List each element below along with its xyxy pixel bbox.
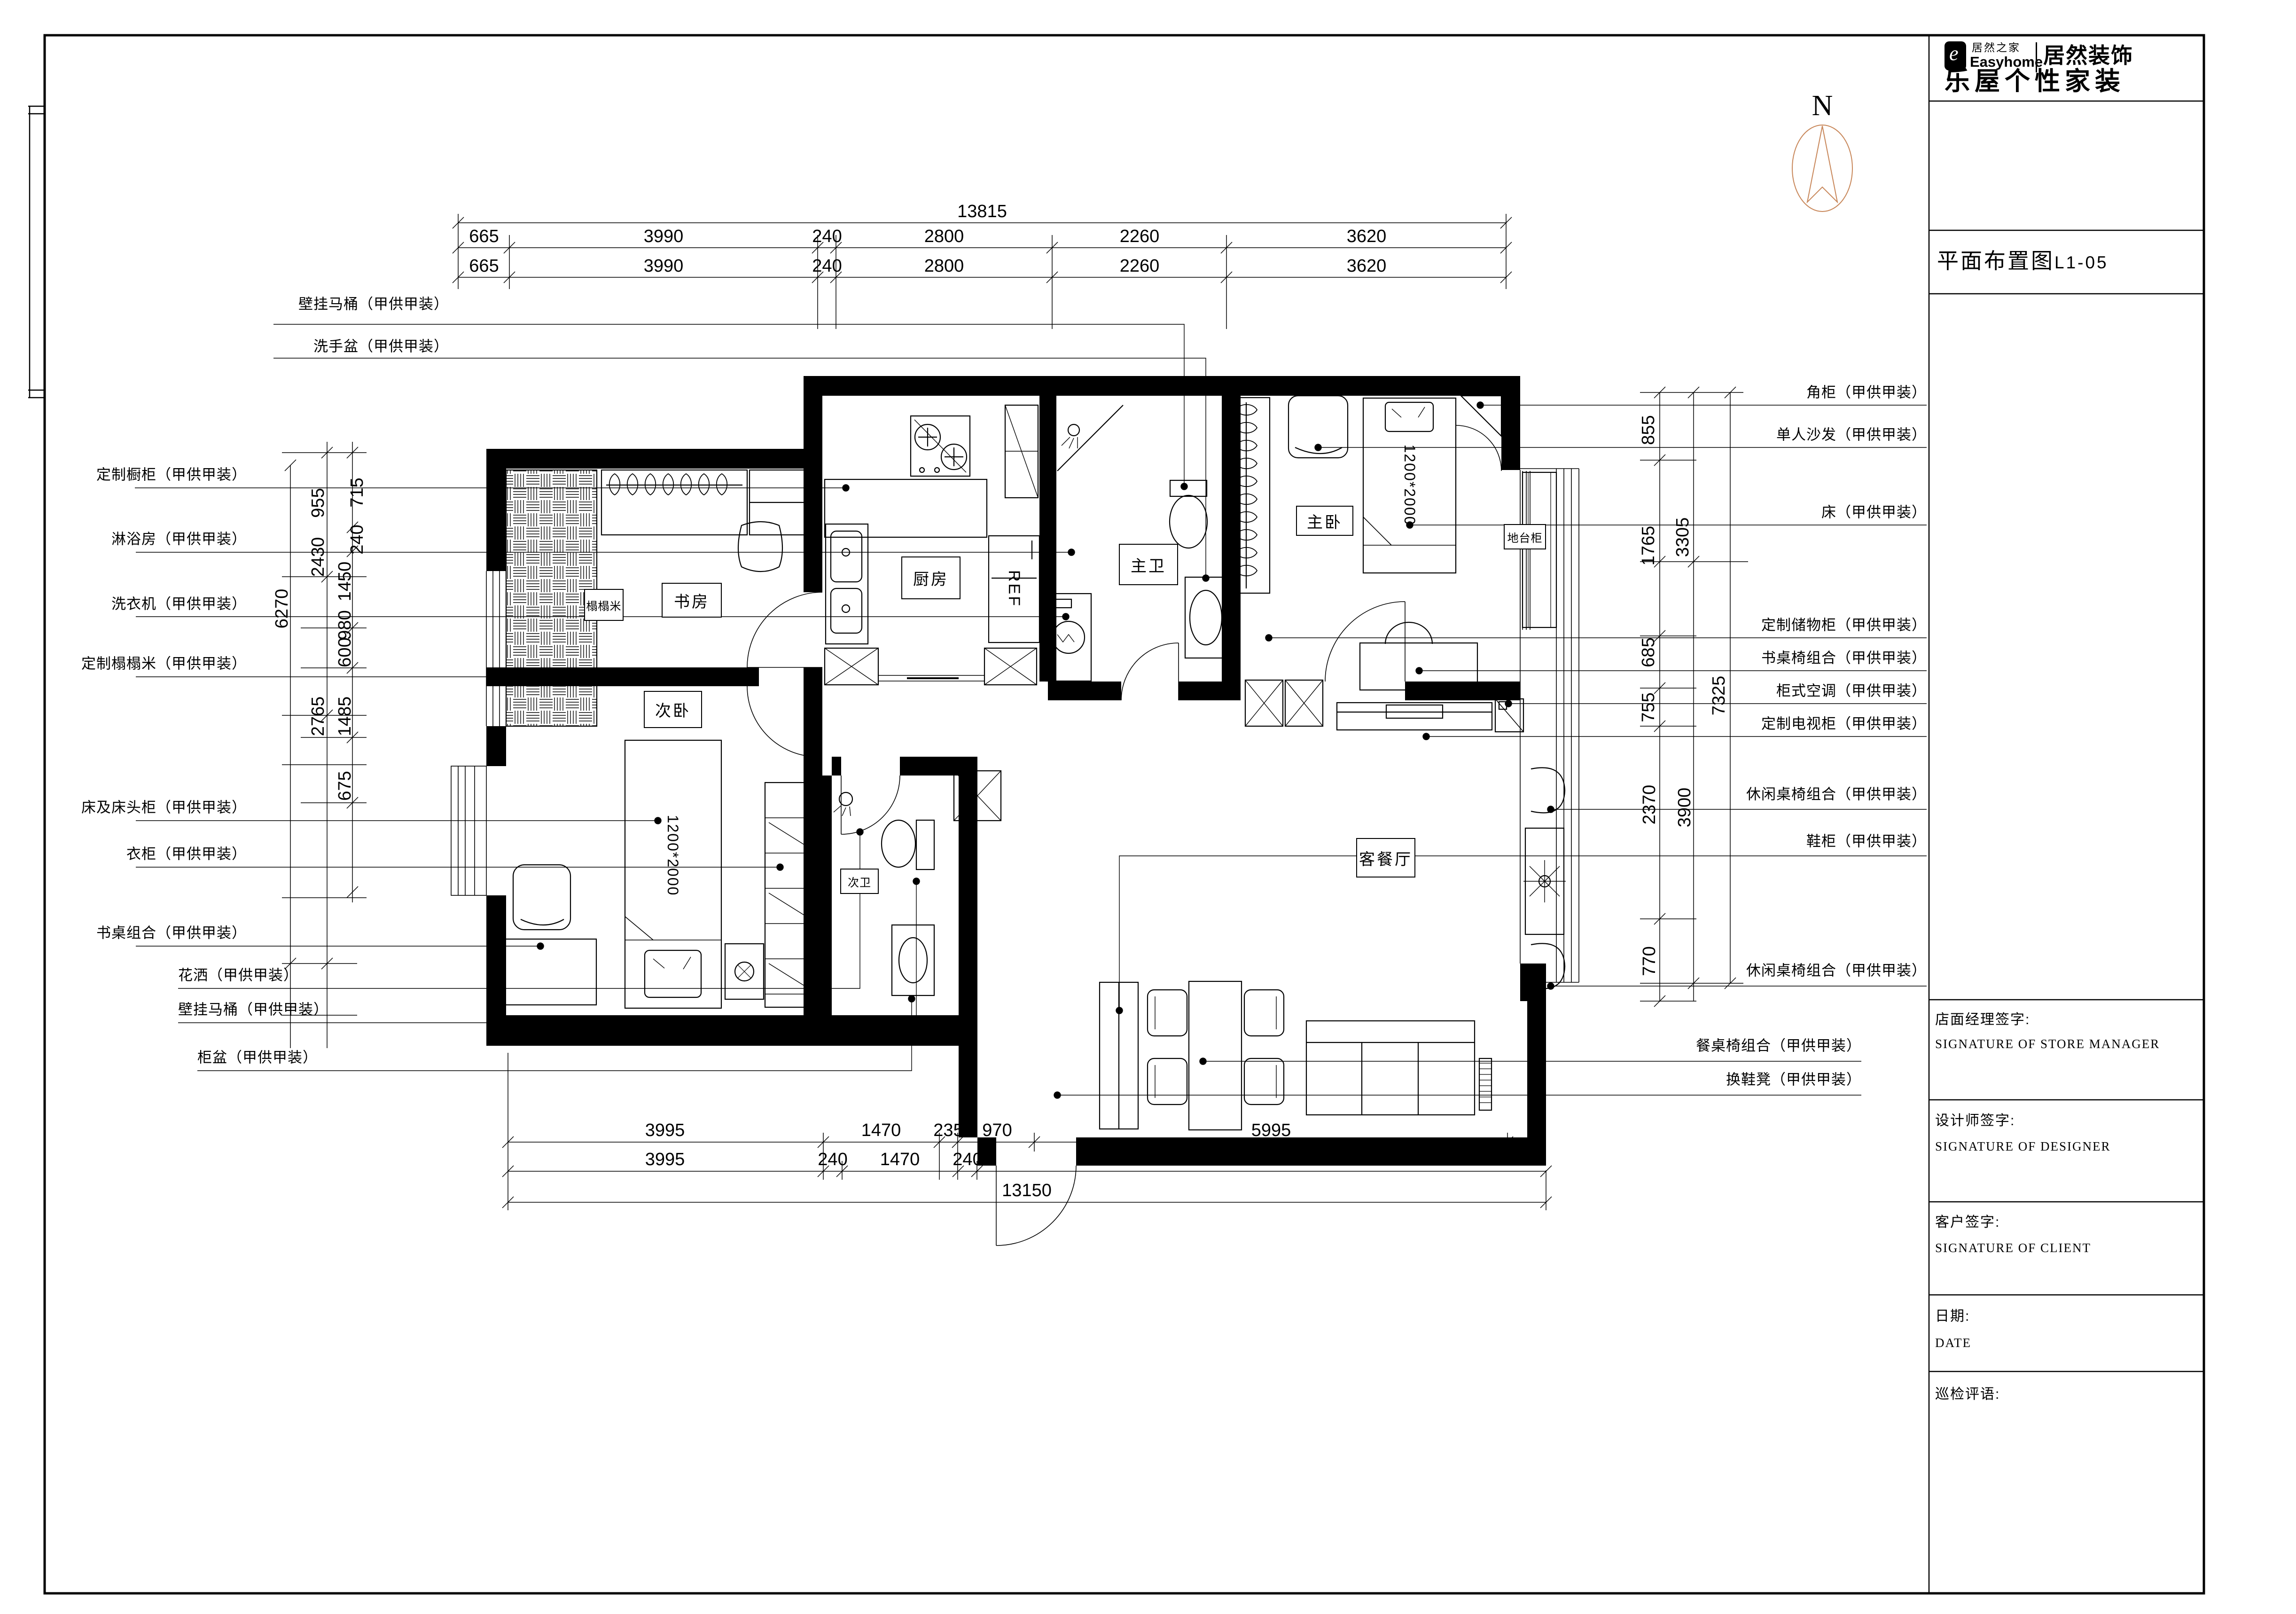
dim-left-6270: 6270 [273, 589, 291, 629]
callout-leisure-set-2: 休闲桌椅组合（甲供甲装） [1746, 964, 1927, 978]
dim-right-7325: 7325 [1710, 676, 1728, 716]
master-bath-fixtures [1046, 405, 1226, 681]
tb-client-cn: 客户签字: [1935, 1215, 2000, 1230]
room-label-second-bedroom: 次卧 [644, 691, 702, 728]
callout-custom-cabinet: 定制橱柜（甲供甲装） [96, 468, 247, 482]
dim-top-r2-5: 3620 [1347, 257, 1387, 275]
dim-right-3900: 3900 [1676, 788, 1694, 828]
room-label-living-dining: 客餐厅 [1356, 838, 1415, 878]
dim-right-1765: 1765 [1640, 526, 1657, 566]
tb-client-en: SIGNATURE OF CLIENT [1935, 1242, 2091, 1254]
dim-right-755: 755 [1640, 692, 1657, 722]
callout-washing-machine: 洗衣机（甲供甲装） [111, 597, 247, 611]
fridge-label: REF [1006, 570, 1022, 608]
room-label-study: 书房 [662, 583, 722, 618]
room-label-second-bedroom-text: 次卧 [655, 698, 691, 721]
dim-bot-r2-0: 3995 [645, 1151, 685, 1168]
logo-division: 居然装饰 [2043, 45, 2133, 66]
living-dining-furniture [954, 680, 1523, 1130]
second-bath-fixtures [834, 792, 934, 995]
callout-tv-cabinet: 定制电视柜（甲供甲装） [1761, 717, 1927, 731]
dim-bot-r2-1: 240 [818, 1151, 847, 1168]
dim-top-r1-3: 2800 [924, 227, 964, 245]
callout-dining-set: 餐桌椅组合（甲供甲装） [1696, 1039, 1861, 1053]
dim-top-r2-4: 2260 [1120, 257, 1160, 275]
platform-cabinet-label-text: 地台柜 [1507, 529, 1543, 545]
callout-shower-head: 花洒（甲供甲装） [178, 968, 298, 983]
callout-wall-toilet-1: 壁挂马桶（甲供甲装） [298, 297, 449, 312]
dim-top-total: 13815 [957, 203, 1007, 220]
logo-slogan: 乐屋个性家装 [1945, 69, 2125, 94]
tatami-label-text: 榻榻米 [586, 597, 622, 613]
drawing-sheet: N e 居然之家 Easyhome 居然装饰 乐屋个性家装 平面布置图L1-05… [0, 0, 2296, 1614]
logo-letter: e [1949, 43, 1959, 64]
room-label-master-bedroom-text: 主卧 [1307, 509, 1343, 533]
callout-single-sofa: 单人沙发（甲供甲装） [1776, 428, 1927, 442]
tb-date-cn: 日期: [1935, 1309, 1970, 1324]
callout-basin: 洗手盆（甲供甲装） [313, 339, 449, 354]
dim-left-980: 980 [336, 610, 354, 640]
north-label: N [1812, 91, 1833, 120]
dim-top-r1-4: 2260 [1120, 227, 1160, 245]
kitchen-furniture [825, 405, 1039, 685]
callout-shoe-bench: 换鞋凳（甲供甲装） [1726, 1073, 1861, 1087]
callout-leisure-set-1: 休闲桌椅组合（甲供甲装） [1746, 787, 1927, 802]
dim-left-715: 715 [348, 478, 366, 507]
dim-bot-r1-0: 3995 [645, 1121, 685, 1139]
room-label-master-bedroom: 主卧 [1296, 506, 1353, 536]
tb-inspection-cn: 巡检评语: [1935, 1387, 2000, 1402]
dim-top-r2-2: 240 [812, 257, 842, 275]
dim-bottom-total: 13150 [1002, 1182, 1052, 1199]
callout-wardrobe: 衣柜（甲供甲装） [126, 847, 247, 862]
callout-corner-cabinet: 角柜（甲供甲装） [1806, 385, 1927, 400]
second-bed-size: 1200*2000 [665, 815, 680, 896]
drawing-number: L1-05 [2054, 253, 2109, 272]
walls [486, 376, 1546, 1166]
sheet-border [28, 35, 2204, 1593]
callout-wall-toilet-2: 壁挂马桶（甲供甲装） [178, 1003, 328, 1017]
callout-storage-cabinet: 定制储物柜（甲供甲装） [1761, 618, 1927, 633]
master-bed-size: 1200*2000 [1402, 445, 1417, 526]
room-label-living-dining-text: 客餐厅 [1359, 846, 1413, 870]
callout-desk-chair-set: 书桌椅组合（甲供甲装） [1761, 651, 1927, 666]
dim-right-2370: 2370 [1640, 785, 1658, 825]
platform-cabinet-label: 地台柜 [1504, 524, 1546, 549]
tatami-label: 榻榻米 [584, 589, 624, 621]
callout-shower-room: 淋浴房（甲供甲装） [111, 532, 247, 547]
callout-tatami: 定制榻榻米（甲供甲装） [81, 657, 247, 671]
dim-left-1485: 1485 [336, 697, 354, 736]
dim-bot-r1-2: 235 [933, 1121, 963, 1139]
dim-bot-r1-3: 970 [982, 1121, 1012, 1139]
dim-left-2765: 2765 [309, 697, 327, 736]
dim-right-3305: 3305 [1674, 517, 1692, 557]
balcony-furniture [1523, 472, 1566, 988]
dim-left-600: 600 [336, 637, 354, 667]
tb-store-manager-cn: 店面经理签字: [1935, 1013, 2030, 1027]
dim-left-2430: 2430 [309, 537, 327, 577]
north-arrow-icon [1792, 125, 1852, 212]
dim-top-r2-0: 665 [469, 257, 499, 275]
dim-bot-r2-4: 7205 [1242, 1151, 1282, 1168]
callout-desk-set: 书桌组合（甲供甲装） [96, 926, 247, 940]
tb-designer-cn: 设计师签字: [1935, 1114, 2015, 1128]
second-bedroom-furniture [500, 740, 810, 1008]
dim-top-r1-1: 3990 [644, 227, 684, 245]
room-label-master-bath: 主卫 [1119, 544, 1178, 585]
dim-left-1450: 1450 [336, 562, 354, 602]
windows [451, 469, 1579, 982]
logo-brand-cn: 居然之家 [1972, 42, 2021, 53]
dim-bot-r2-2: 1470 [880, 1151, 920, 1168]
dim-top-r2-1: 3990 [644, 257, 684, 275]
tb-date-en: DATE [1935, 1337, 1971, 1349]
dim-right-855: 855 [1640, 415, 1657, 445]
dim-bot-r2-3: 240 [953, 1151, 982, 1168]
master-bedroom-furniture [1224, 396, 1501, 690]
callout-bed-nightstand: 床及床头柜（甲供甲装） [81, 800, 247, 815]
dim-right-685: 685 [1640, 637, 1657, 667]
callout-bed: 床（甲供甲装） [1821, 505, 1927, 520]
callout-cabinet-basin: 柜盆（甲供甲装） [197, 1050, 318, 1065]
drawing-title-text: 平面布置图 [1937, 249, 2054, 273]
dim-top-r1-5: 3620 [1347, 227, 1387, 245]
room-label-master-bath-text: 主卫 [1131, 553, 1166, 576]
callout-shoe-cabinet: 鞋柜（甲供甲装） [1806, 834, 1927, 849]
room-label-kitchen: 厨房 [901, 556, 961, 599]
tb-store-manager-en: SIGNATURE OF STORE MANAGER [1935, 1038, 2160, 1050]
room-label-second-bath-text: 次卫 [848, 873, 871, 890]
dim-top-r1-2: 240 [812, 227, 842, 245]
dim-left-955: 955 [309, 488, 327, 517]
dim-right-770: 770 [1640, 946, 1658, 976]
tb-designer-en: SIGNATURE OF DESIGNER [1935, 1140, 2111, 1153]
room-label-kitchen-text: 厨房 [913, 566, 949, 589]
room-label-second-bath: 次卫 [840, 869, 879, 894]
room-label-study-text: 书房 [674, 589, 710, 612]
dim-top-r1-0: 665 [469, 227, 499, 245]
dim-bot-r1-4: 5995 [1251, 1121, 1291, 1139]
dim-left-675: 675 [336, 771, 354, 800]
dim-left-240: 240 [348, 525, 366, 554]
drawing-title: 平面布置图L1-05 [1937, 250, 2109, 272]
callout-cabinet-ac: 柜式空调（甲供甲装） [1776, 684, 1927, 698]
dim-top-r2-3: 2800 [924, 257, 964, 275]
easyhome-logo-icon: e [1945, 41, 1966, 71]
dim-bot-r1-1: 1470 [861, 1121, 901, 1139]
